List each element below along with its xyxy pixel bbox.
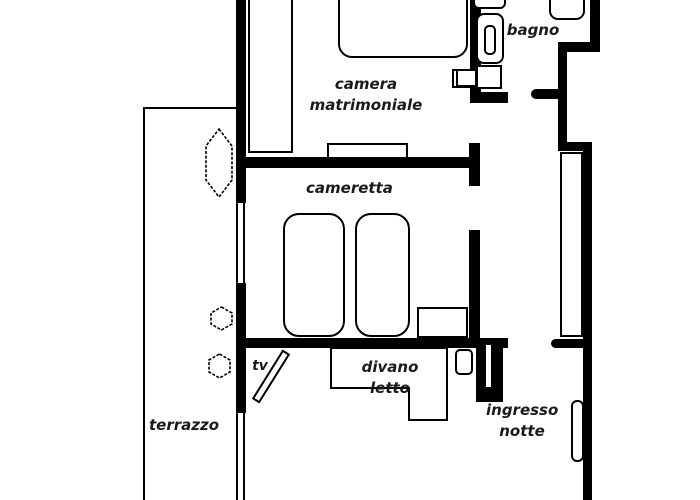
wall-stub-t: [469, 143, 480, 186]
nightstand-cameretta: [417, 307, 468, 338]
window-left-lower: [236, 413, 245, 500]
door-stub-ingresso: [551, 339, 592, 348]
washing-machine-side: [456, 69, 477, 87]
label-terrazzo: terrazzo: [148, 415, 220, 436]
wall-staple-slot: [486, 345, 491, 387]
toilet: [549, 0, 585, 20]
wall-left-top: [236, 0, 246, 203]
wall-right-mid: [558, 42, 567, 150]
label-bagno: bagno: [505, 20, 561, 41]
plant-small-icon-1: [210, 306, 233, 331]
sink: [473, 0, 506, 9]
plant-small-icon-2: [208, 353, 231, 379]
label-cameretta: cameretta: [306, 178, 392, 199]
double-bed: [338, 0, 468, 58]
wall-right-top: [590, 0, 600, 47]
entrance-door: [571, 400, 584, 462]
wardrobe-camera: [248, 0, 293, 153]
side-table: [455, 349, 473, 375]
plant-tall-icon: [205, 128, 233, 198]
dresser-camera: [327, 143, 408, 159]
label-ingresso-notte: ingresso notte: [486, 400, 558, 442]
terrazzo-edge-left: [143, 107, 145, 500]
washing-machine: [476, 65, 502, 89]
floor-plan: bagno camera matrimoniale cameretta tv d…: [0, 0, 700, 500]
label-divano-letto: divano letto: [340, 357, 440, 399]
bidet-bowl: [484, 25, 496, 55]
wall-cameretta-right: [469, 230, 480, 348]
wall-bagno-bottom: [470, 92, 508, 103]
label-tv: tv: [246, 356, 274, 377]
label-camera-matrimoniale: camera matrimoniale: [308, 74, 424, 116]
single-bed-2: [355, 213, 410, 337]
door-stub-bagno: [531, 89, 560, 99]
wall-left-mid: [236, 283, 246, 413]
wardrobe-ingresso: [560, 152, 583, 337]
single-bed-1: [283, 213, 345, 337]
terrazzo-edge-top: [143, 107, 236, 109]
window-left-upper: [236, 203, 245, 283]
wall-right-long: [583, 142, 592, 500]
